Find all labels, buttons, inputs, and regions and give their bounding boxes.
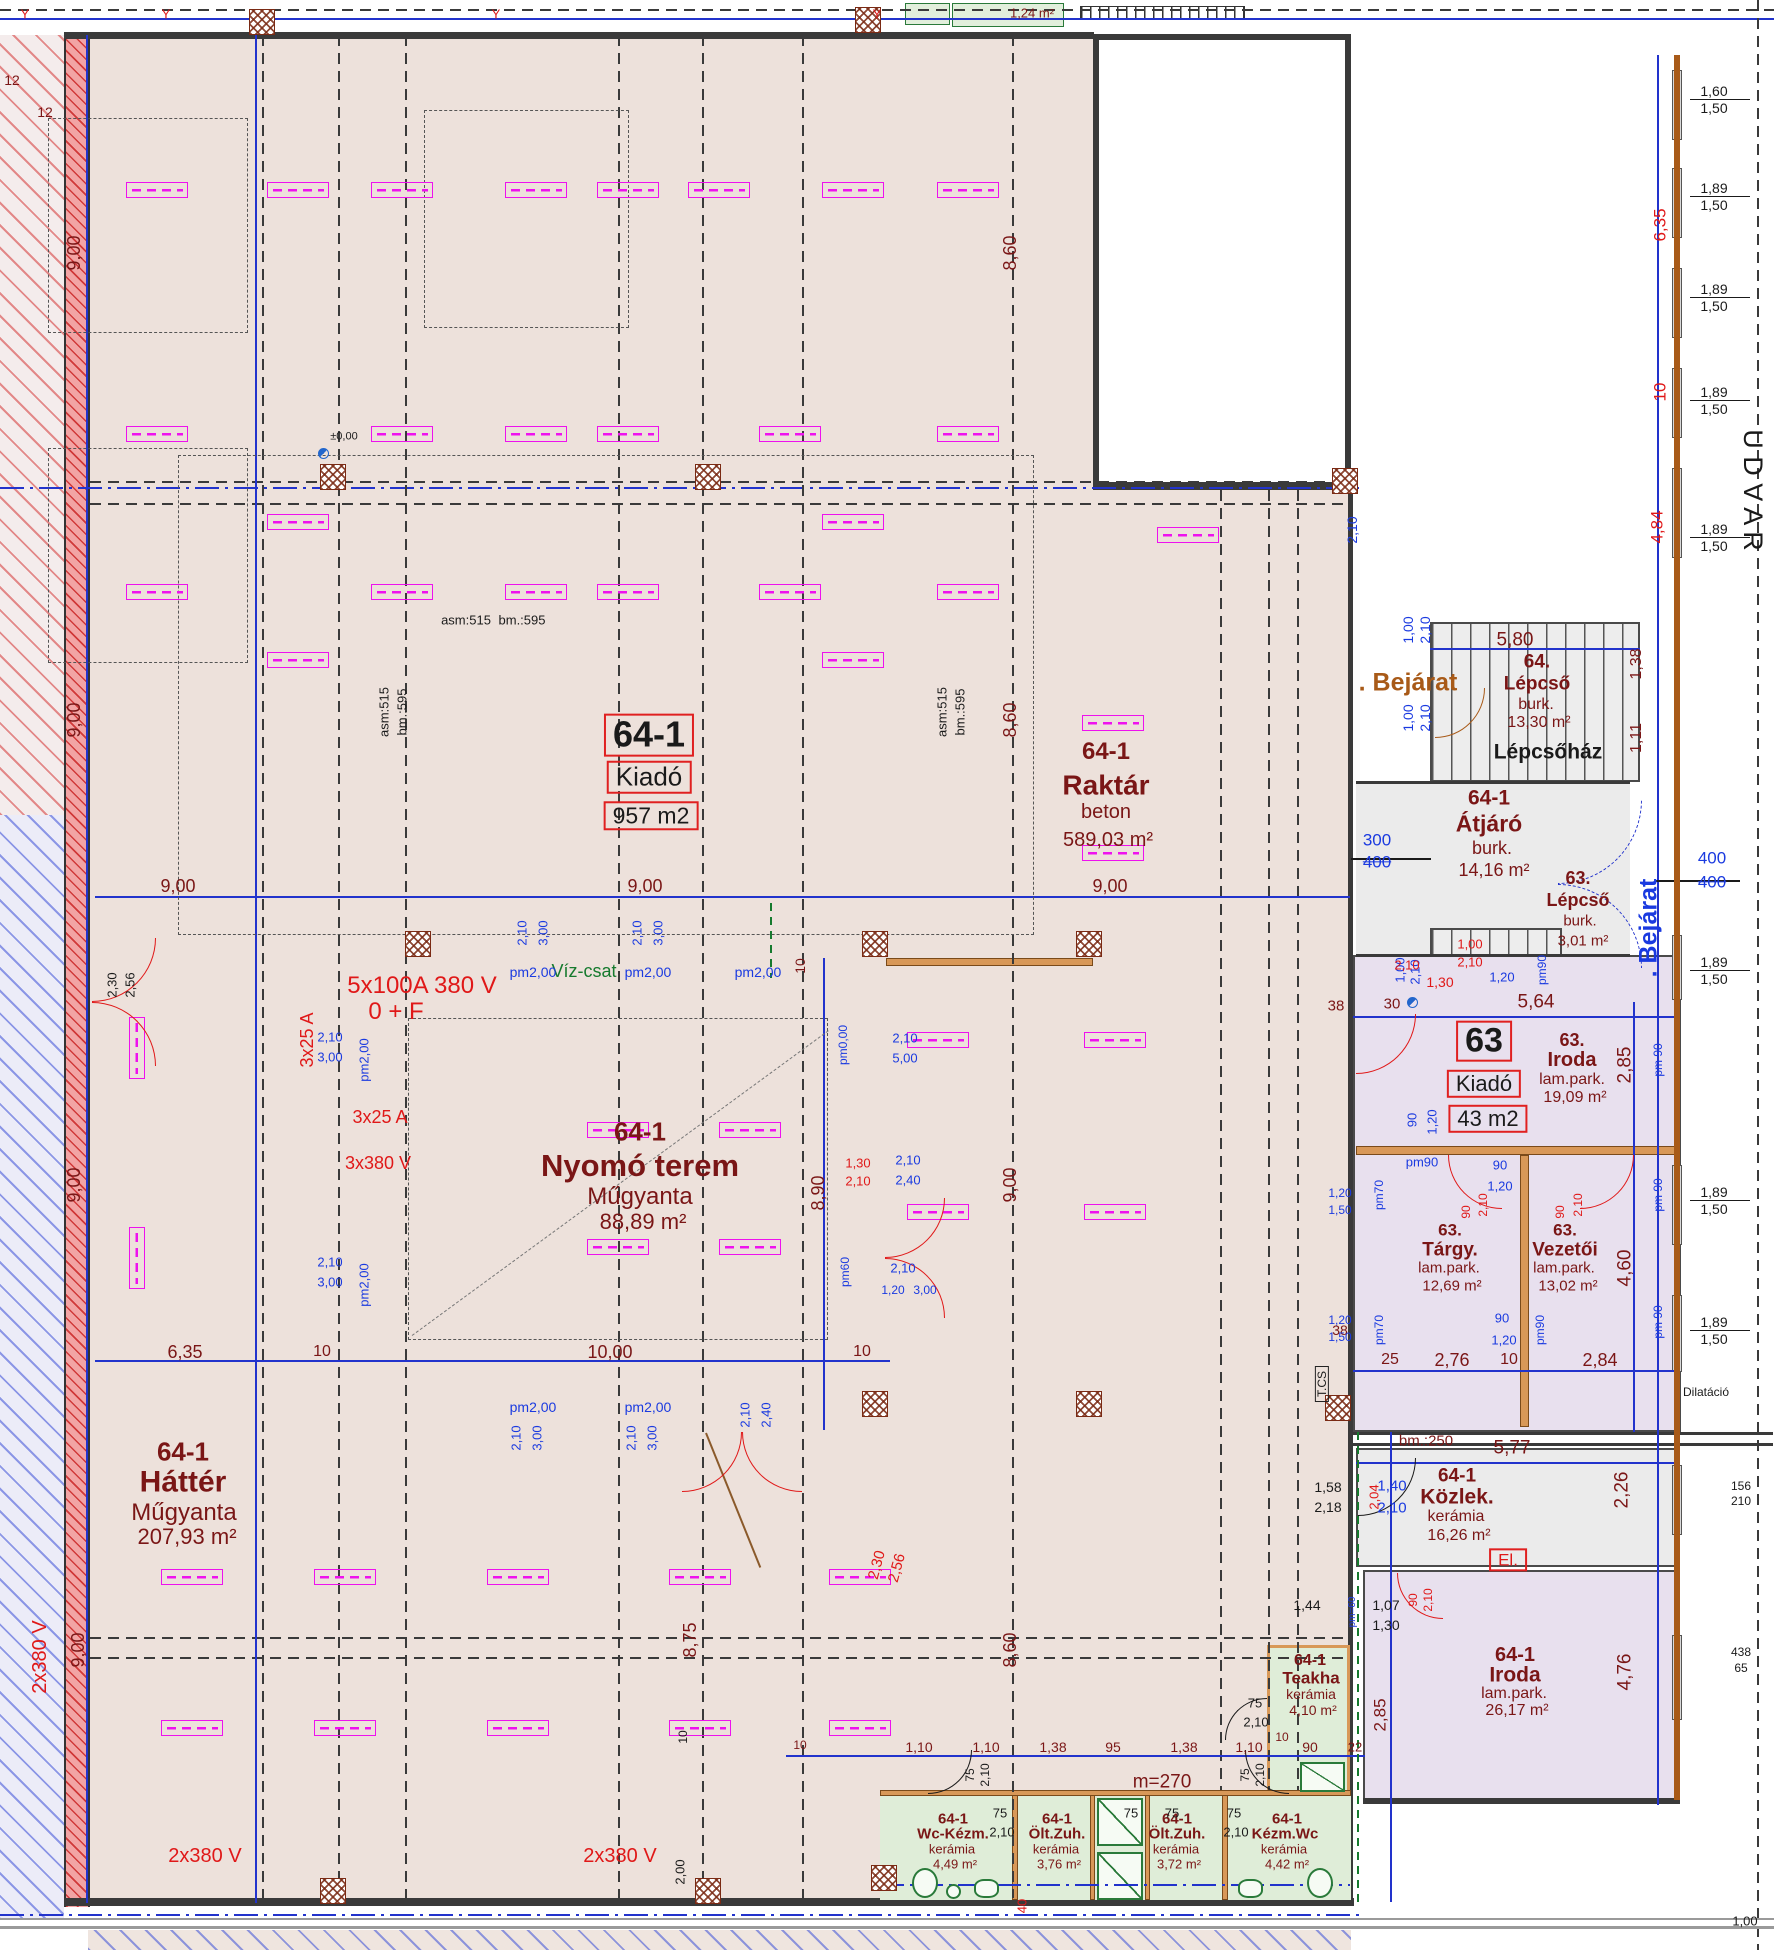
- dimension-label: pm0,00: [837, 1025, 849, 1065]
- room-label: . Bejárat: [1636, 879, 1662, 978]
- dimension-label: 210: [1731, 1495, 1751, 1507]
- dimension-label: kerámia: [1286, 1687, 1336, 1701]
- dimension-label: kerámia: [1261, 1842, 1307, 1855]
- light-fixture: [487, 1569, 549, 1585]
- line: [1353, 1370, 1680, 1372]
- grid-line: [262, 35, 264, 1898]
- room-label: Kiadó: [1447, 1070, 1521, 1098]
- grid-line: [338, 35, 340, 1898]
- dimension-label: 1,50: [1700, 1332, 1727, 1346]
- dimension-label: 64-1: [1042, 1811, 1072, 1826]
- dimension-label: 1,30: [1372, 1618, 1399, 1632]
- dimension-label: 156: [1731, 1480, 1751, 1492]
- column-marker: [1076, 931, 1102, 957]
- light-fixture: [129, 1227, 145, 1289]
- dimension-label: kerámia: [1033, 1842, 1079, 1855]
- room-label: m=270: [1133, 1772, 1192, 1791]
- room-label: Teakha: [1282, 1669, 1339, 1686]
- dimension-label: 38: [1328, 998, 1345, 1013]
- room-label: 10,00: [587, 1343, 632, 1361]
- dimension-label: pm=60: [1348, 1597, 1358, 1628]
- room-label: 26,17 m²: [1485, 1703, 1548, 1719]
- room-label: 43 m2: [1448, 1105, 1527, 1133]
- room-label: 2x380 V: [30, 1620, 50, 1693]
- grid-line: [1220, 490, 1222, 1790]
- dimension-label: 1,50: [1328, 1204, 1351, 1216]
- room-label: lam.park.: [1481, 1686, 1547, 1702]
- room-label: Iroda: [1489, 1664, 1540, 1685]
- dimension-label: 90: [1554, 1205, 1566, 1218]
- dimension-label: 2,40: [895, 1173, 920, 1186]
- room-label: 64-1: [1294, 1653, 1326, 1669]
- dimension-label: 75: [993, 1806, 1007, 1819]
- dimension-label: 1,07: [1372, 1598, 1399, 1612]
- room-label: 64-1: [614, 1119, 666, 1146]
- dimension-label: 1,89: [1700, 1315, 1727, 1329]
- dimension-label: 1,20: [1489, 970, 1514, 983]
- column-marker: [320, 1878, 346, 1904]
- dimension-label: pm60: [839, 1257, 851, 1287]
- dimension-label: 3,76 m²: [1037, 1857, 1081, 1870]
- dimension-label: 90: [1493, 1158, 1507, 1171]
- dimension-label: 1,10: [1235, 1740, 1262, 1754]
- dimension-label: 2,10: [1345, 516, 1359, 543]
- dimension-label: 12: [37, 105, 53, 119]
- dimension-label: 2,30: [105, 972, 118, 997]
- dimension-label: 1,20: [1328, 1314, 1351, 1326]
- survey-marker: [1407, 997, 1418, 1008]
- light-fixture: [597, 584, 659, 600]
- room-label: Lépcső: [1504, 674, 1571, 693]
- dimension-label: 90: [1302, 1740, 1318, 1754]
- dimension-label: 75: [1165, 1806, 1179, 1819]
- room-label: El.: [1489, 1548, 1527, 1571]
- dimension-label: 1,24 m²: [1010, 6, 1054, 19]
- room-label: 64.: [1524, 652, 1550, 671]
- dimension-label: 1,10: [905, 1740, 932, 1754]
- room-label: Műgyanta: [587, 1185, 692, 1209]
- room-label: 8,75: [681, 1622, 699, 1657]
- room-label: 1,38: [1629, 648, 1645, 679]
- room-label: 9,00: [160, 877, 195, 895]
- light-fixture: [822, 514, 884, 530]
- dimension-label: 3,00: [317, 1275, 342, 1288]
- dimension-label: 2,10: [1572, 1193, 1584, 1216]
- column-marker: [871, 1865, 897, 1891]
- dimension-label: 1,50: [1700, 402, 1727, 416]
- light-fixture: [371, 426, 433, 442]
- room-label: 64-1: [1082, 740, 1130, 764]
- room-label: 9,00: [627, 877, 662, 895]
- room-label: 4,84: [1648, 510, 1665, 543]
- grid-line: [1012, 35, 1014, 1898]
- light-fixture: [267, 514, 329, 530]
- dimension-label: pm90: [1534, 1315, 1546, 1345]
- dimension-label: 1,00: [1401, 704, 1415, 731]
- room-label: 9,00: [69, 1632, 87, 1667]
- dimension-label: 13,02 m²: [1538, 1278, 1597, 1293]
- light-fixture: [759, 426, 821, 442]
- light-fixture: [1084, 1204, 1146, 1220]
- wall-63-h: [1356, 1146, 1678, 1155]
- room-label: 9,00: [65, 1167, 83, 1202]
- dimension-label: 4,49 m²: [933, 1857, 977, 1870]
- light-fixture: [371, 584, 433, 600]
- column-marker: [862, 1391, 888, 1417]
- room-label: Háttér: [140, 1468, 227, 1499]
- room-label: 8,60: [1001, 235, 1019, 270]
- dimension-label: pm90: [1536, 955, 1548, 985]
- dimension-label: 10: [793, 1739, 806, 1751]
- room-label: 64-1: [157, 1439, 209, 1466]
- dimension-label: 12: [4, 73, 20, 87]
- dimension-label: pm2,00: [625, 965, 672, 979]
- dimension-label: 75: [1239, 1768, 1251, 1781]
- dimension-label: pm2,00: [510, 965, 557, 979]
- dimension-label: Y: [873, 7, 882, 20]
- light-fixture: [505, 182, 567, 198]
- dimension-label: bm.:250: [1399, 1433, 1453, 1448]
- room-label: 14,16 m²: [1458, 861, 1529, 879]
- dimension-label: 5,00: [892, 1051, 917, 1064]
- light-fixture: [161, 1720, 223, 1736]
- light-fixture: [314, 1569, 376, 1585]
- grid-line: [1757, 0, 1759, 1950]
- dimension-label: 4,10 m²: [1289, 1703, 1336, 1717]
- light-fixture: [505, 426, 567, 442]
- dimension-label: Ölt.Zuh.: [1149, 1826, 1206, 1841]
- light-fixture: [587, 1239, 649, 1255]
- grid-line: [1297, 490, 1299, 1790]
- room-label: 9,00: [1001, 1167, 1019, 1202]
- dimension-label: pm2,00: [735, 965, 782, 979]
- dimension-label: 3,00: [536, 920, 549, 945]
- light-fixture: [597, 182, 659, 198]
- room-label: 400: [1698, 849, 1726, 866]
- dimension-label: 1,30: [845, 1156, 870, 1169]
- dimension-label: 75: [964, 1768, 976, 1781]
- room-label: 8,90: [809, 1175, 827, 1210]
- sanitary-fixture: [1238, 1879, 1263, 1898]
- dimension-label: 1,20: [1328, 1187, 1351, 1199]
- room-label: 5,80: [1497, 630, 1534, 649]
- dimension-label: pm70: [1373, 1315, 1385, 1345]
- dimension-label: 3,72 m²: [1157, 1857, 1201, 1870]
- room-label: 2,85: [1615, 1047, 1634, 1084]
- line: [0, 1918, 1774, 1920]
- dimension-label: 3,00: [530, 1425, 543, 1450]
- dimension-label: bm.:595: [395, 689, 408, 736]
- dimension-label: Y: [492, 7, 501, 20]
- dimension-label: 1,60: [1700, 84, 1727, 98]
- dimension-label: asm:515: [441, 613, 491, 626]
- dimension-label: asm:515: [935, 687, 948, 737]
- dimension-label: T.CS: [1315, 1366, 1329, 1402]
- light-fixture: [314, 1720, 376, 1736]
- column-marker: [1332, 468, 1358, 494]
- dimension-label: kerámia: [1153, 1842, 1199, 1855]
- room-label: Lépcsőház: [1494, 741, 1603, 762]
- dimension-label: 2,10: [1477, 1193, 1489, 1216]
- dimension-label: 2,10: [624, 1425, 637, 1450]
- light-fixture: [126, 426, 188, 442]
- dimension-label: 64-1: [938, 1811, 968, 1826]
- dimension-label: 3,00: [651, 920, 664, 945]
- dimension-label: 2,10: [1223, 1825, 1248, 1838]
- room-label: 589,03 m²: [1063, 830, 1153, 850]
- room-label: 10: [1651, 383, 1668, 402]
- room-label: 9,00: [65, 235, 83, 270]
- room-label: 10: [1500, 1352, 1518, 1368]
- room-label: 13,30 m²: [1507, 715, 1570, 731]
- dimension-label: 1,50: [1700, 299, 1727, 313]
- room-label: Víz-csat: [551, 962, 616, 980]
- dimension-label: 4,42 m²: [1265, 1857, 1309, 1870]
- room-label: 64-1: [1468, 787, 1510, 808]
- dimension-label: 1,50: [1700, 101, 1727, 115]
- room-label: 6,35: [1651, 208, 1668, 241]
- dashed-zone: [424, 110, 629, 328]
- dimension-label: 90: [1495, 1311, 1509, 1324]
- dimension-label: 3,00: [645, 1425, 658, 1450]
- room-label: 2,76: [1434, 1351, 1469, 1369]
- dimension-label: 2,10: [630, 920, 643, 945]
- room-label: 63.: [1553, 1221, 1577, 1238]
- line: [1430, 648, 1640, 650]
- wing-south-wall: [1363, 1798, 1680, 1804]
- dimension-label: pm 90: [1652, 1305, 1664, 1338]
- dimension-label: 2,10: [892, 1031, 917, 1044]
- light-fixture: [597, 426, 659, 442]
- light-fixture: [1084, 1032, 1146, 1048]
- line: [95, 1360, 890, 1362]
- dimension-label: 1,44: [1293, 1598, 1320, 1612]
- room-label: Tárgy.: [1422, 1240, 1478, 1259]
- dimension-label: 1,58: [1314, 1480, 1341, 1494]
- room-label: 3x25 A: [352, 1108, 407, 1126]
- dimension-label: 2,10: [317, 1255, 342, 1268]
- dimension-label: 2,10: [989, 1825, 1014, 1838]
- dimension-label: pm90: [1406, 1155, 1439, 1168]
- sanitary-fixture: [912, 1868, 938, 1898]
- room-label: 5,64: [1518, 992, 1555, 1011]
- room-label: Közlek.: [1420, 1486, 1494, 1507]
- light-fixture: [937, 182, 999, 198]
- dimension-label: 438: [1731, 1646, 1751, 1658]
- room-label: 64-1: [1495, 1645, 1535, 1665]
- room-label: Kiadó: [607, 761, 692, 794]
- room-label: U D V A R: [1738, 429, 1766, 551]
- dimension-label: bm.:595: [953, 689, 966, 736]
- light-fixture: [937, 426, 999, 442]
- dimension-label: 90: [1405, 1113, 1418, 1127]
- room-label: Nyomó terem: [541, 1150, 739, 1182]
- dimension-label: 1,00: [1457, 937, 1482, 950]
- light-fixture: [505, 584, 567, 600]
- room-label: kerámia: [1428, 1509, 1485, 1525]
- column-marker: [249, 9, 275, 35]
- light-fixture: [719, 1122, 781, 1138]
- dimension-label: 2,10: [845, 1174, 870, 1187]
- dimension-label: Kézm.Wc: [1252, 1826, 1319, 1841]
- room-label: 25: [1381, 1352, 1399, 1368]
- column-marker: [1076, 1391, 1102, 1417]
- room-label: 10: [313, 1344, 331, 1360]
- room-label: 63.: [1565, 869, 1590, 887]
- room-label: 64-1: [604, 714, 694, 757]
- dimension-label: burk.: [1563, 913, 1596, 928]
- dimension-label: 1,50: [1700, 198, 1727, 212]
- room-label: 88,89 m²: [600, 1211, 687, 1233]
- dimension-label: Wc-Kézm.: [917, 1826, 989, 1841]
- dimension-label: 64-1: [1272, 1811, 1302, 1826]
- dimension-label: 1,50: [1700, 539, 1727, 553]
- dimension-label: asm:515: [377, 687, 390, 737]
- dimension-label: 2,10: [509, 1425, 522, 1450]
- dimension-label: kerámia: [929, 1842, 975, 1855]
- dimension-label: 2,10: [515, 920, 528, 945]
- light-fixture: [267, 182, 329, 198]
- dimension-label: 3,00: [317, 1050, 342, 1063]
- dimension-label: lam.park.: [1418, 1260, 1480, 1275]
- dashed-zone: [48, 118, 248, 333]
- light-fixture: [669, 1569, 731, 1585]
- dimension-label: 90: [1460, 1205, 1472, 1218]
- dimension-label: pm 90: [1652, 1178, 1664, 1211]
- green-box-1: [905, 3, 950, 25]
- dimension-label: 2,10: [738, 1402, 751, 1427]
- column-marker: [320, 464, 346, 490]
- dimension-label: 1,89: [1700, 1185, 1727, 1199]
- dimension-label: lam.park.: [1533, 1260, 1595, 1275]
- column-marker: [695, 464, 721, 490]
- dimension-label: 10: [677, 1730, 689, 1743]
- teakha-sink: [1300, 1762, 1345, 1792]
- line: [0, 1926, 1774, 1929]
- room-label: 16,26 m²: [1427, 1528, 1490, 1544]
- dimension-label: pm 90: [1652, 1043, 1664, 1076]
- dimension-label: 10: [1275, 1731, 1288, 1743]
- dimension-label: 30: [1384, 996, 1401, 1011]
- room-label: 300: [1363, 831, 1391, 848]
- dimension-label: 1,89: [1700, 181, 1727, 195]
- room-label: 8,60: [1001, 702, 1019, 737]
- grid-line: [702, 35, 704, 1898]
- line: [255, 35, 257, 1903]
- room-label: 8,60: [1001, 1632, 1019, 1667]
- room-label: 957 m2: [604, 801, 699, 830]
- sanitary-fixture: [974, 1879, 999, 1898]
- dimension-label: 1,38: [1039, 1740, 1066, 1754]
- room-label: 63.: [1559, 1031, 1584, 1049]
- dimension-label: 2,10: [1394, 958, 1419, 971]
- dimension-label: Y: [21, 7, 30, 20]
- dimension-label: 1,20: [1425, 1109, 1438, 1134]
- dimension-label: Y: [162, 7, 171, 20]
- room-label: 9,00: [65, 702, 83, 737]
- sanitary-fixture: [946, 1884, 961, 1899]
- dimension-label: 1,38: [1170, 1740, 1197, 1754]
- room-label: Lépcső: [1546, 891, 1609, 909]
- room-label: 63.: [1438, 1221, 1462, 1238]
- dimension-label: 75: [1248, 1696, 1262, 1709]
- floor-plan: 64-1Kiadó957 m264-1Raktárbeton589,03 m²6…: [0, 0, 1774, 1950]
- dimension-label: 1,30: [1426, 975, 1453, 989]
- room-label: beton: [1081, 802, 1131, 822]
- dimension-label: ±0,00: [330, 431, 357, 442]
- dimension-label: 75: [1227, 1806, 1241, 1819]
- light-fixture: [1082, 715, 1144, 731]
- room-label: lam.park.: [1539, 1072, 1605, 1088]
- light-fixture: [759, 584, 821, 600]
- room-label: 400: [1363, 853, 1391, 870]
- dimension-label: 2,10: [1418, 704, 1432, 731]
- dimension-label: pm70: [1373, 1180, 1385, 1210]
- room-label: 63: [1456, 1021, 1512, 1062]
- room-label: 2x380 V: [168, 1846, 241, 1866]
- dimension-label: 75: [1124, 1806, 1138, 1819]
- dimension-label: 3,00: [913, 1284, 936, 1296]
- dimension-label: 1,89: [1700, 955, 1727, 969]
- light-fixture: [822, 652, 884, 668]
- grid-line: [90, 1657, 1348, 1659]
- dimension-label: 1,50: [1700, 972, 1727, 986]
- dimension-label: 1,50: [1700, 1202, 1727, 1216]
- grid-line: [1268, 490, 1270, 1790]
- room-label: 1,11: [1629, 723, 1645, 753]
- dimension-label: 1,40: [1377, 1478, 1406, 1493]
- dimension-label: 90: [1407, 1593, 1419, 1606]
- dimension-label: pm2,00: [357, 1038, 370, 1081]
- light-fixture: [126, 182, 188, 198]
- room-label: 19,09 m²: [1543, 1090, 1606, 1106]
- room-label: 4,60: [1615, 1250, 1634, 1287]
- light-fixture: [719, 1239, 781, 1255]
- dimension-label: 2,04: [1367, 1484, 1380, 1509]
- line: [1356, 781, 1630, 784]
- room-label: 6,35: [167, 1343, 202, 1361]
- grid-line: [405, 35, 407, 1898]
- dimension-label: 2,10: [317, 1030, 342, 1043]
- room-label: 3x380 V: [345, 1154, 411, 1172]
- room-label: 64-1: [1438, 1466, 1476, 1485]
- dimension-label: bm.:595: [499, 613, 546, 626]
- light-fixture: [937, 584, 999, 600]
- room-label: 2,84: [1582, 1351, 1617, 1369]
- room-label: 10: [853, 1344, 871, 1360]
- top-wall: [64, 32, 1094, 39]
- light-fixture: [487, 1720, 549, 1736]
- dimension-label: 1,89: [1700, 522, 1727, 536]
- column-marker: [405, 931, 431, 957]
- bottom-outside-hatch: [88, 1930, 1351, 1950]
- room-label: 207,93 m²: [137, 1526, 236, 1548]
- room-label: . Bejárat: [1359, 670, 1458, 696]
- dimension-label: pm2,00: [357, 1263, 370, 1306]
- room-label: 9,00: [1092, 877, 1127, 895]
- room-label: Műgyanta: [131, 1501, 236, 1525]
- dimension-label: 65: [1734, 1662, 1747, 1674]
- light-fixture: [126, 584, 188, 600]
- line: [1674, 55, 1680, 1800]
- dimension-label: 1,89: [1700, 385, 1727, 399]
- dimension-label: 1,20: [881, 1284, 904, 1296]
- dimension-label: 2,10: [890, 1261, 915, 1274]
- room-label: 3x25 A: [298, 1012, 316, 1067]
- dimension-label: 10: [793, 958, 807, 974]
- dimension-label: 1,10: [972, 1740, 999, 1754]
- grid-line: [90, 1637, 1348, 1639]
